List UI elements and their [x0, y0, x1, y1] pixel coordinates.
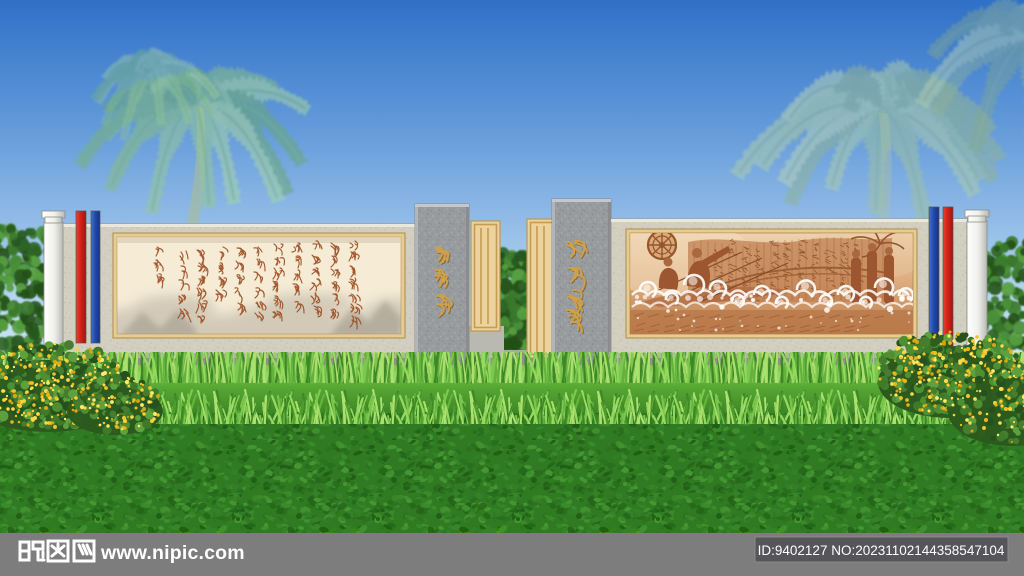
svg-text:ID:9402127 NO:2023110214435854: ID:9402127 NO:20231102144358547104: [758, 543, 1005, 558]
svg-text:www.nipic.com: www.nipic.com: [100, 542, 245, 564]
